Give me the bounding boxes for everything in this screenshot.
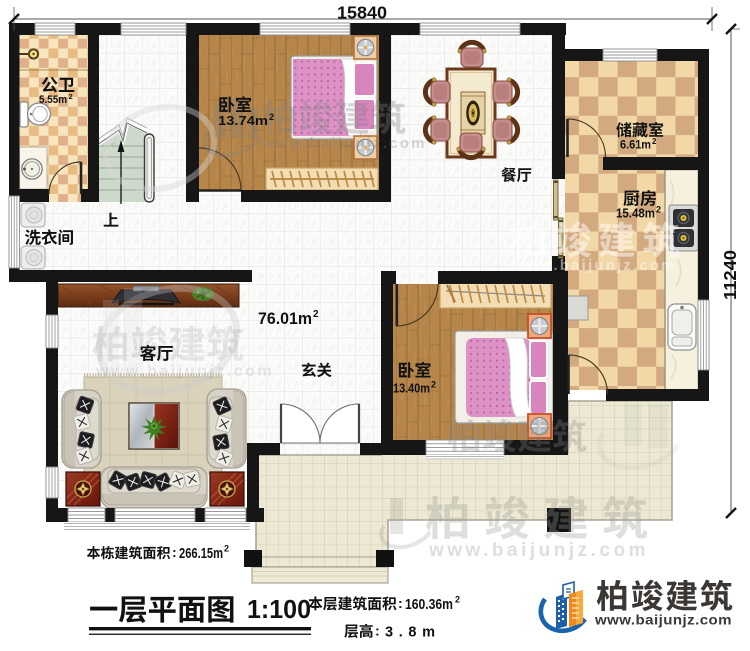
svg-text:2: 2 xyxy=(652,137,657,146)
svg-text:15.48m: 15.48m xyxy=(616,206,655,221)
svg-text:6.61m: 6.61m xyxy=(620,138,651,152)
svg-text:5.55m: 5.55m xyxy=(39,94,67,106)
svg-text:266.15m: 266.15m xyxy=(179,545,223,562)
svg-text::: : xyxy=(375,623,380,639)
svg-text:2: 2 xyxy=(431,380,436,390)
svg-text:www.baijunjz.com: www.baijunjz.com xyxy=(261,135,427,152)
svg-text:www.baijunjz.com: www.baijunjz.com xyxy=(95,363,274,380)
svg-text:160.36m: 160.36m xyxy=(405,596,453,613)
svg-text:2: 2 xyxy=(656,205,661,215)
svg-text:www.baijunjz.com: www.baijunjz.com xyxy=(512,258,677,274)
svg-text::: : xyxy=(172,544,177,560)
svg-text:3.8m: 3.8m xyxy=(385,625,435,641)
svg-text:2: 2 xyxy=(455,595,460,605)
svg-text:2: 2 xyxy=(269,112,274,122)
svg-text:2: 2 xyxy=(69,92,73,101)
svg-text:13.40m: 13.40m xyxy=(393,381,430,396)
svg-text:www.baijunjz.com: www.baijunjz.com xyxy=(594,613,732,628)
svg-text:15840: 15840 xyxy=(337,3,387,23)
svg-text:2: 2 xyxy=(224,544,229,554)
svg-text:1:100: 1:100 xyxy=(247,594,311,624)
svg-text:13.74m: 13.74m xyxy=(218,113,268,128)
svg-text:www.baijunjz.com: www.baijunjz.com xyxy=(428,540,649,561)
svg-text::: : xyxy=(398,595,403,611)
svg-text:2: 2 xyxy=(313,309,319,320)
svg-text:11240: 11240 xyxy=(720,250,740,300)
svg-text:76.01m: 76.01m xyxy=(258,310,312,328)
